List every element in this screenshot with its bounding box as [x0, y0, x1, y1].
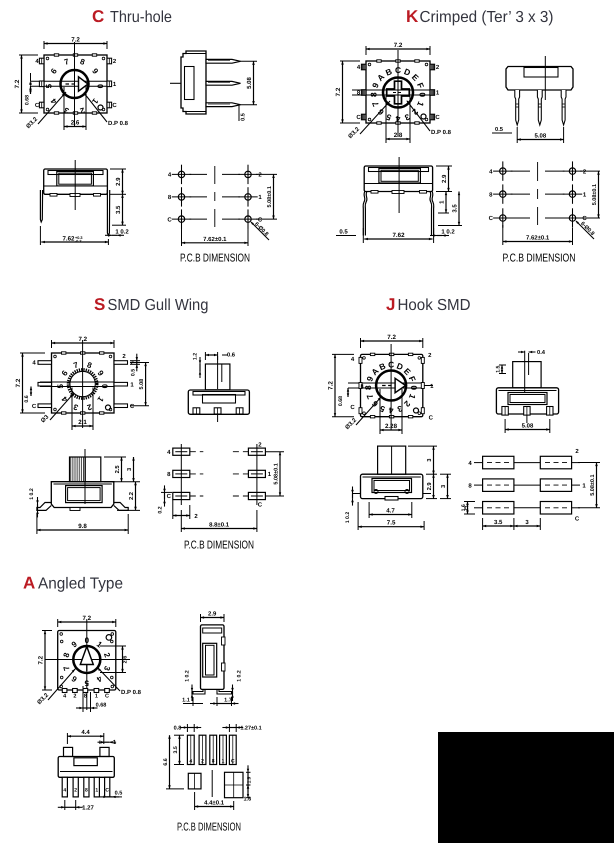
- svg-text:5.08±0.1: 5.08±0.1: [590, 474, 596, 495]
- svg-text:0.5: 0.5: [131, 369, 137, 376]
- svg-text:4: 4: [189, 759, 192, 765]
- svg-text:0: 0: [96, 84, 105, 89]
- svg-text:1.27: 1.27: [82, 804, 94, 811]
- svg-text:C: C: [130, 403, 135, 410]
- svg-text:4: 4: [388, 406, 393, 416]
- svg-text:7.62: 7.62: [62, 236, 75, 243]
- svg-text:P.C.B DIMENSION: P.C.B DIMENSION: [177, 822, 241, 834]
- svg-text:P.C.B DIMENSION: P.C.B DIMENSION: [184, 540, 254, 552]
- svg-text:C: C: [489, 215, 494, 222]
- svg-text:7.62±0.1: 7.62±0.1: [203, 236, 227, 243]
- svg-text:7.62±0.1: 7.62±0.1: [526, 235, 550, 242]
- svg-text:1: 1: [95, 788, 98, 794]
- svg-text:1.5: 1.5: [496, 365, 502, 372]
- svg-text:5.08: 5.08: [139, 379, 145, 390]
- svg-text:1 0.2: 1 0.2: [237, 670, 243, 682]
- svg-text:1 0.2: 1 0.2: [29, 488, 35, 500]
- svg-text:D.P 0.8: D.P 0.8: [108, 120, 129, 127]
- svg-text:1 0.2: 1 0.2: [345, 512, 351, 524]
- svg-text:5.08±0.1: 5.08±0.1: [592, 184, 598, 205]
- svg-text:5.08: 5.08: [246, 77, 253, 89]
- svg-text:2.8: 2.8: [394, 132, 403, 139]
- svg-text:2.2: 2.2: [128, 492, 135, 500]
- svg-text:0.68: 0.68: [25, 95, 31, 105]
- svg-text:5.08: 5.08: [535, 133, 547, 140]
- svg-text:0.5: 0.5: [115, 791, 123, 797]
- svg-text:Crimped (Ter’ 3 x 3): Crimped (Ter’ 3 x 3): [420, 9, 554, 26]
- svg-text:7.2: 7.2: [387, 334, 396, 341]
- svg-text:4: 4: [395, 114, 400, 124]
- svg-text:0.8: 0.8: [174, 726, 182, 732]
- svg-text:5: 5: [45, 83, 54, 88]
- svg-text:1.2: 1.2: [193, 353, 199, 360]
- svg-text:2.9: 2.9: [208, 611, 217, 618]
- svg-text:C: C: [105, 694, 109, 700]
- svg-text:C: C: [575, 516, 580, 523]
- svg-text:1.7: 1.7: [224, 698, 232, 704]
- svg-text:C: C: [231, 759, 235, 765]
- svg-text:0.5: 0.5: [339, 229, 348, 236]
- svg-text:2.1: 2.1: [78, 419, 87, 426]
- svg-text:0.6: 0.6: [24, 395, 30, 402]
- svg-text:C: C: [388, 360, 394, 370]
- svg-text:1.9: 1.9: [247, 776, 253, 783]
- svg-text:C: C: [356, 114, 361, 121]
- svg-text:A: A: [23, 574, 35, 593]
- svg-text:7.2: 7.2: [335, 87, 342, 96]
- svg-text:C: C: [435, 114, 440, 121]
- svg-text:2: 2: [73, 694, 76, 700]
- svg-text:0.6: 0.6: [227, 352, 236, 359]
- svg-text:5.08±0.1: 5.08±0.1: [267, 186, 273, 207]
- svg-text:SMD Gull Wing: SMD Gull Wing: [108, 297, 209, 314]
- svg-text:J: J: [386, 295, 395, 314]
- svg-text:0.5: 0.5: [241, 113, 247, 121]
- svg-text:0.5: 0.5: [495, 126, 504, 133]
- svg-text:7.2: 7.2: [82, 615, 91, 622]
- svg-text:5: 5: [56, 383, 65, 388]
- svg-text:C: C: [258, 502, 263, 509]
- svg-text:7.2: 7.2: [15, 378, 22, 387]
- svg-text:8.8±0.1: 8.8±0.1: [209, 522, 230, 529]
- svg-text:8: 8: [84, 694, 87, 700]
- svg-text:P.C.B DIMENSION: P.C.B DIMENSION: [180, 253, 250, 265]
- svg-text:C: C: [112, 102, 117, 109]
- svg-text:2: 2: [74, 788, 77, 794]
- svg-text:1.27±0.1: 1.27±0.1: [240, 726, 261, 732]
- svg-text:6.6: 6.6: [163, 758, 169, 765]
- svg-text:0.68: 0.68: [96, 703, 107, 709]
- svg-text:C: C: [350, 404, 355, 411]
- svg-text:4.7: 4.7: [386, 508, 395, 515]
- svg-text:8: 8: [212, 759, 215, 765]
- svg-text:3.5: 3.5: [452, 204, 459, 213]
- svg-text:5.08: 5.08: [522, 423, 534, 430]
- svg-text:C: C: [167, 216, 172, 223]
- svg-text:D.P 0.8: D.P 0.8: [431, 129, 452, 136]
- svg-text:C: C: [429, 415, 434, 422]
- svg-text:0: 0: [418, 92, 428, 97]
- svg-text:8: 8: [369, 92, 379, 97]
- svg-text:C: C: [35, 102, 40, 109]
- svg-text:Hook SMD: Hook SMD: [398, 297, 471, 314]
- svg-text:2: 2: [201, 759, 204, 765]
- svg-text:8: 8: [363, 385, 373, 390]
- svg-text:7.2: 7.2: [38, 655, 45, 664]
- svg-text:2.9: 2.9: [441, 174, 448, 183]
- svg-text:7.2: 7.2: [71, 37, 80, 44]
- svg-text:0.68: 0.68: [338, 396, 344, 406]
- svg-text:7.62: 7.62: [392, 232, 405, 239]
- svg-text:1 0.2: 1 0.2: [441, 229, 455, 236]
- svg-text:0: 0: [100, 384, 109, 389]
- svg-text:3.5: 3.5: [494, 519, 503, 526]
- svg-text:1: 1: [95, 694, 98, 700]
- svg-text:C: C: [32, 403, 37, 410]
- svg-text:C: C: [395, 65, 401, 75]
- svg-text:K: K: [406, 7, 419, 26]
- svg-text:C: C: [92, 7, 104, 26]
- svg-text:8: 8: [85, 788, 88, 794]
- svg-text:5: 5: [84, 678, 89, 687]
- svg-text:4: 4: [63, 788, 66, 794]
- svg-text:7.2: 7.2: [78, 336, 87, 343]
- svg-text:1.6: 1.6: [244, 797, 252, 803]
- svg-text:2.6: 2.6: [123, 656, 129, 664]
- svg-text:4.4±0.1: 4.4±0.1: [204, 800, 225, 807]
- svg-text:2.28: 2.28: [385, 423, 398, 430]
- svg-text:S: S: [94, 295, 105, 314]
- svg-text:7.2: 7.2: [328, 381, 335, 390]
- svg-text:0.4: 0.4: [537, 349, 546, 356]
- svg-text:2.9: 2.9: [115, 177, 122, 186]
- svg-text:2.9: 2.9: [426, 482, 433, 491]
- svg-text:1 0.2: 1 0.2: [115, 229, 129, 236]
- svg-text:0.2: 0.2: [158, 506, 164, 513]
- svg-text:Angled Type: Angled Type: [38, 576, 123, 593]
- svg-text:0: 0: [85, 636, 90, 645]
- svg-text:D.P 0.8: D.P 0.8: [121, 689, 142, 696]
- svg-text:1.6: 1.6: [461, 504, 467, 511]
- svg-text:3.5: 3.5: [115, 205, 122, 214]
- svg-text:C: C: [105, 788, 109, 794]
- svg-text:C: C: [167, 493, 172, 500]
- svg-text:7.2: 7.2: [394, 42, 403, 49]
- svg-text:2.5: 2.5: [114, 465, 121, 474]
- svg-text:Thru-hole: Thru-hole: [110, 9, 172, 26]
- svg-text:3.5: 3.5: [173, 746, 179, 753]
- svg-text:4.4: 4.4: [81, 729, 90, 736]
- svg-text:P.C.B DIMENSION: P.C.B DIMENSION: [503, 253, 576, 265]
- svg-text:1: 1: [222, 759, 225, 765]
- svg-text:5.08±0.1: 5.08±0.1: [274, 463, 280, 484]
- svg-text:1.1: 1.1: [182, 698, 190, 704]
- svg-text:7.2: 7.2: [14, 79, 21, 88]
- svg-text:0: 0: [409, 385, 419, 390]
- svg-text:1 0.2: 1 0.2: [185, 670, 191, 682]
- svg-text:-0.2: -0.2: [75, 239, 82, 243]
- svg-text:2.6: 2.6: [71, 120, 80, 127]
- svg-text:7.5: 7.5: [387, 520, 396, 527]
- svg-text:9.8: 9.8: [78, 523, 87, 530]
